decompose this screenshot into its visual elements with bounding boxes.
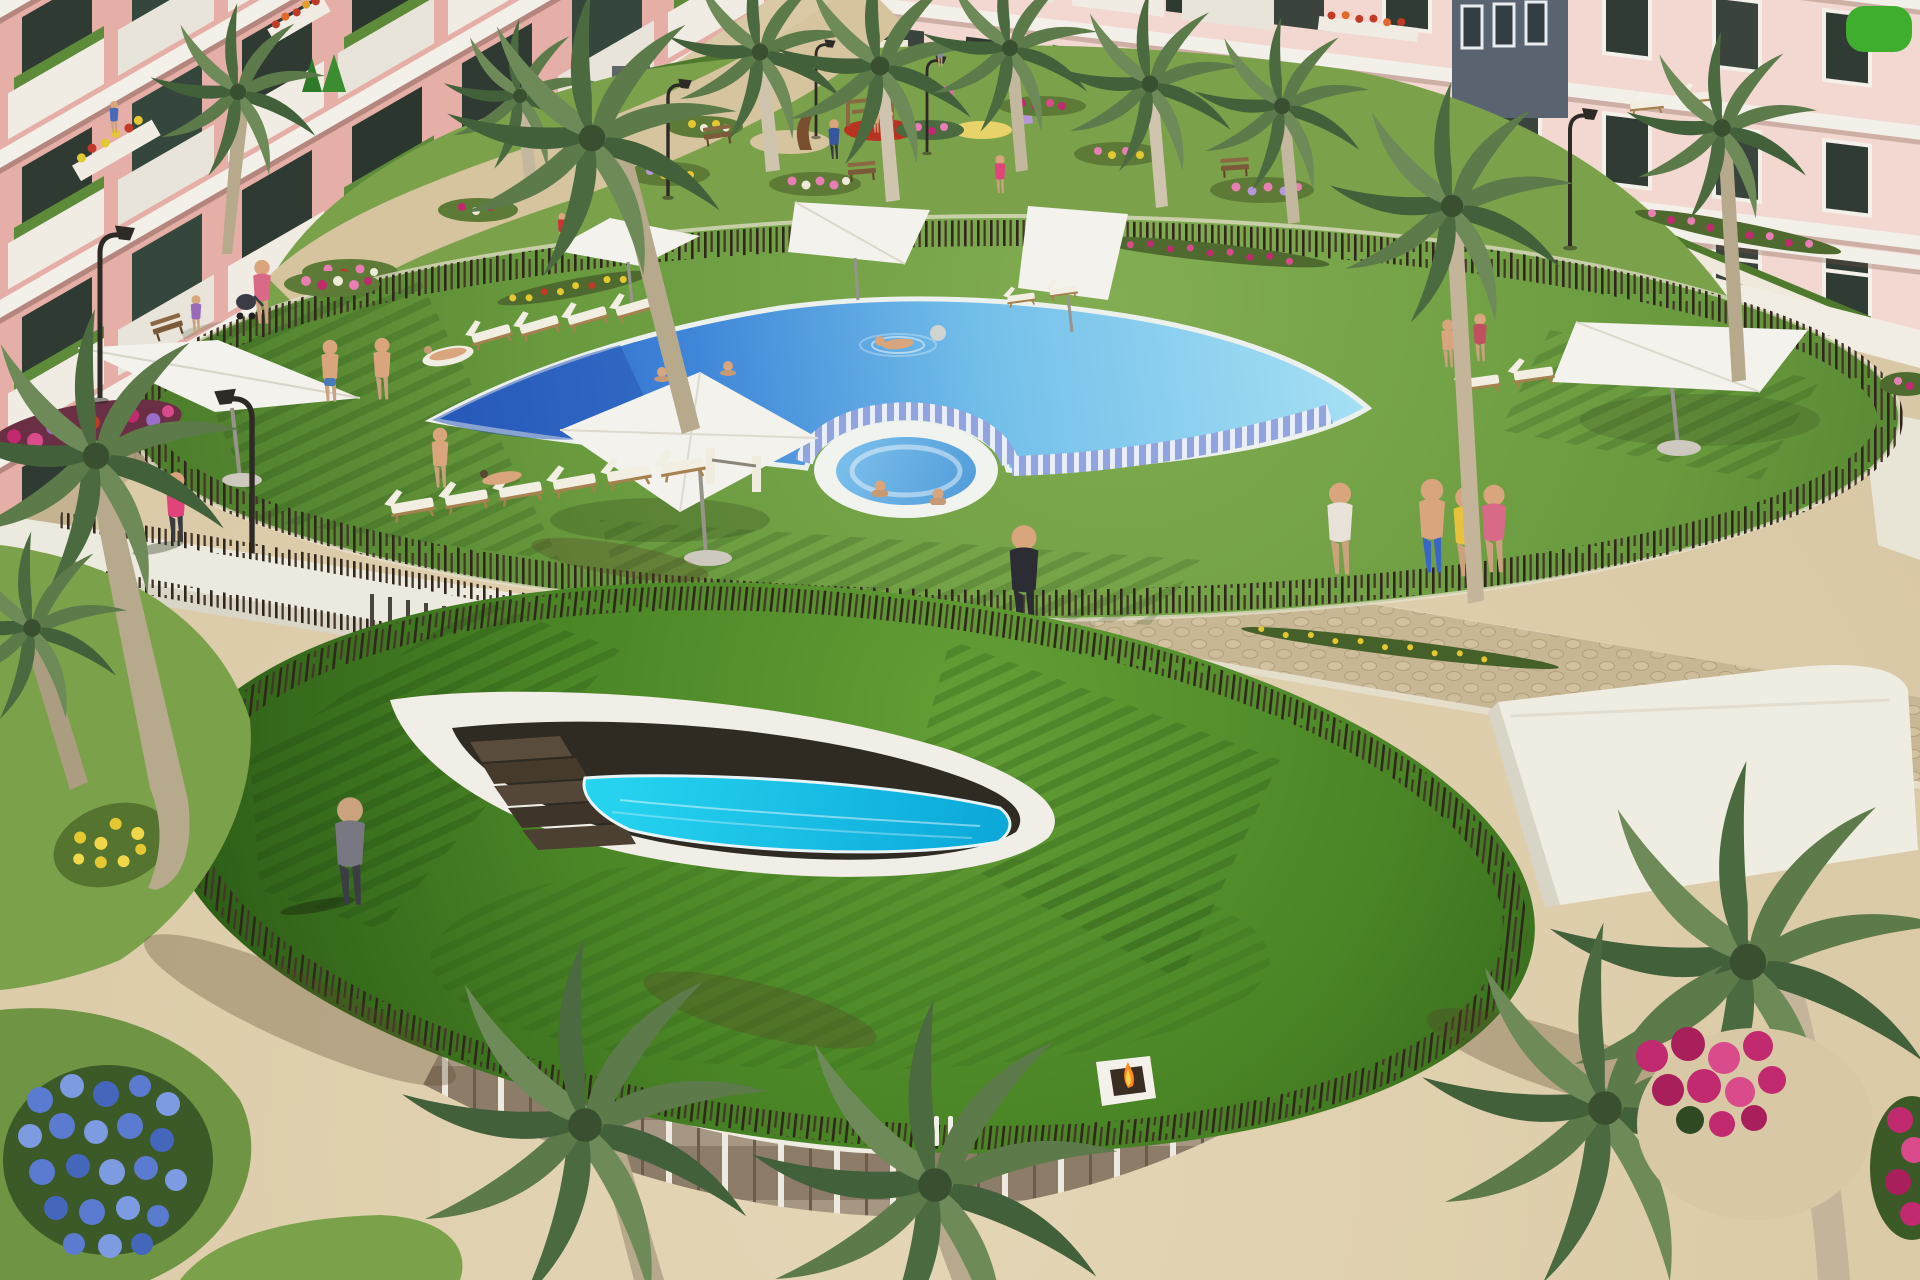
fire-pit xyxy=(1096,1056,1156,1106)
recessed-dark-building xyxy=(1452,0,1568,118)
rooftop-tree xyxy=(1846,6,1912,52)
upper-left-flower-bed xyxy=(284,271,380,297)
spa-jacuzzi xyxy=(814,422,998,518)
rendered-image xyxy=(0,0,1920,1280)
